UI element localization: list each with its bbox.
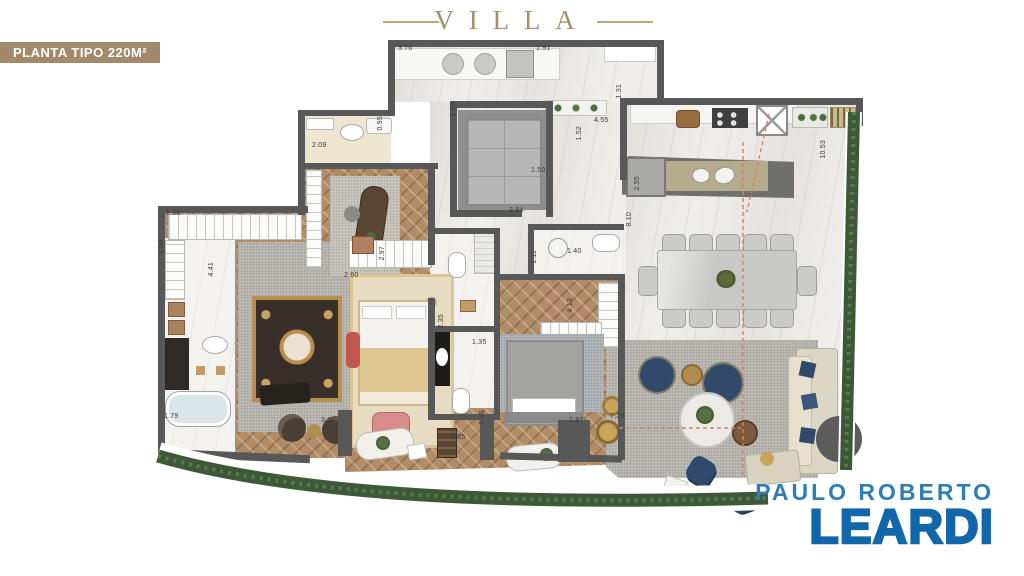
dimension-label: 1.99 (450, 102, 457, 116)
dimension-label: 2.87 (569, 417, 583, 424)
dimension-label: 1.91 (536, 45, 550, 52)
dimension-label: 10.53 (820, 140, 827, 159)
dimension-label: 1.50 (158, 240, 165, 254)
dimension-label: 4.55 (594, 117, 608, 124)
dimension-label: 2.97 (379, 246, 386, 260)
dimension-label: 1.40 (567, 248, 581, 255)
dimension-label: 8.10 (626, 212, 633, 226)
brokerage-name-main: LEARDI (755, 506, 994, 550)
dimension-label: 2.45 (479, 410, 486, 424)
dimension-label: 2.55 (634, 176, 641, 190)
dimension-label: 1.52 (576, 126, 583, 140)
floor-plan-page: VILLA PLANTA TIPO 220M² (0, 0, 1024, 576)
dimension-label: 2.09 (312, 142, 326, 149)
dimension-label: 1.31 (616, 84, 623, 98)
dimension-label: 3.76 (398, 45, 412, 52)
dimension-label: 4.13 (567, 298, 574, 312)
dimension-label: 2.35 (438, 314, 445, 328)
dimension-label: 1.50 (531, 167, 545, 174)
dimension-label: 0.95 (377, 116, 384, 130)
dimension-label: 3.84 (509, 207, 523, 214)
dimension-label: 2.60 (344, 272, 358, 279)
dimension-label: 4.41 (208, 262, 215, 276)
dimension-label: 7.20 (610, 413, 624, 420)
dimension-label: 6.36 (166, 210, 180, 217)
brokerage-logo: PAULO ROBERTO LEARDI (755, 479, 994, 550)
dimension-label: 1.35 (472, 339, 486, 346)
dimension-label: 1.11 (531, 250, 538, 264)
dimension-label: 3.00 (321, 417, 335, 424)
dimension-label: 5.65 (451, 434, 465, 441)
dimension-label: 1.79 (164, 413, 178, 420)
